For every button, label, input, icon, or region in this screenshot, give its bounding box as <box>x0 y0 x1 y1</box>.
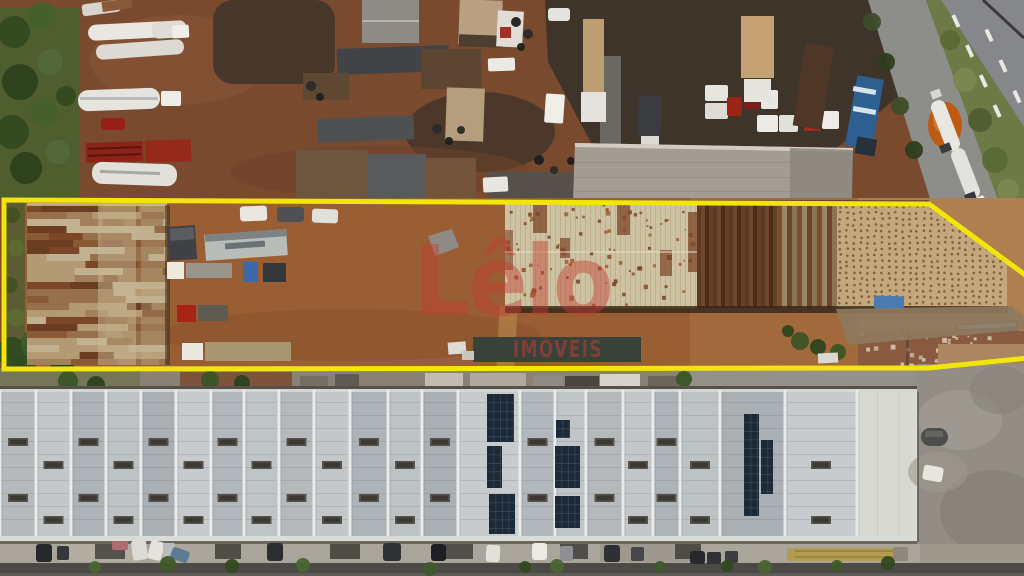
white-roof-section <box>634 213 637 216</box>
rust-dot <box>866 242 869 245</box>
white-roof-section <box>650 203 651 308</box>
rust-dot <box>986 272 989 275</box>
roof-vent <box>81 440 97 445</box>
solar-grid <box>500 394 501 442</box>
roof-purlin <box>521 519 554 520</box>
roof-seam <box>898 392 899 538</box>
rust-dot <box>845 265 848 268</box>
rust-dot <box>880 212 883 215</box>
rust-dot <box>922 260 925 263</box>
rust-dot <box>958 247 961 250</box>
roof-purlin <box>280 402 313 403</box>
rust-dot <box>908 235 911 238</box>
lane-patch <box>920 544 1024 564</box>
rusty-warehouse-roof <box>46 254 90 262</box>
solar-grid <box>507 394 508 442</box>
rusty-warehouse-roof <box>27 247 50 255</box>
roof-purlin <box>423 506 457 507</box>
roof-purlin <box>107 428 140 429</box>
rust-dot <box>965 241 968 244</box>
rust-dot <box>860 241 863 244</box>
cattle-trailer <box>86 141 144 163</box>
white-roof-section <box>530 220 532 222</box>
white-roof-section <box>649 226 652 229</box>
brick-texture <box>901 362 904 365</box>
roof-purlin <box>280 519 313 520</box>
trees-property-right <box>791 332 809 350</box>
solar-grid <box>555 522 580 523</box>
rust-dot <box>909 241 912 244</box>
roof-purlin <box>72 402 105 403</box>
roof-purlin <box>351 519 387 520</box>
roof-purlin <box>142 415 175 416</box>
rust-dot <box>958 242 961 245</box>
rust-dot <box>909 272 912 275</box>
roof-purlin <box>107 493 140 494</box>
solar-grid <box>489 503 515 504</box>
roof-purlin <box>786 402 856 403</box>
roof-vent <box>254 463 270 468</box>
roof-ridge <box>313 390 316 540</box>
rust-dot <box>930 224 933 227</box>
rusty-warehouse-roof <box>27 359 71 365</box>
white-van <box>483 176 509 192</box>
roof-purlin <box>423 480 457 481</box>
solar-grid <box>489 511 515 512</box>
solar-grid <box>489 528 515 529</box>
container-truck <box>583 19 604 93</box>
rust-dot <box>943 290 946 293</box>
roof-purlin <box>37 454 70 455</box>
rust-dot <box>859 283 862 286</box>
rust-dot <box>838 279 841 282</box>
solar-panels <box>555 446 580 488</box>
rust-dot <box>887 212 890 215</box>
roof-purlin <box>315 441 349 442</box>
rust-dot <box>943 284 946 287</box>
roof-purlin <box>786 506 856 507</box>
rust-dot <box>986 278 989 281</box>
solar-grid <box>494 446 495 488</box>
rust-dot <box>852 297 855 300</box>
roof-ridge <box>140 390 143 540</box>
rust-dot <box>957 253 960 256</box>
roof-purlin <box>351 480 387 481</box>
rust-dot <box>979 255 982 258</box>
red-truck-cab <box>177 305 196 322</box>
solar-grid <box>744 499 759 500</box>
mixed-roof-section <box>782 204 787 308</box>
rust-dot <box>944 296 947 299</box>
rust-dot <box>931 265 934 268</box>
rust-dot <box>915 289 918 292</box>
roof-purlin <box>280 493 313 494</box>
rusty-warehouse-roof <box>27 226 66 234</box>
rust-dot <box>965 260 968 263</box>
yard-car <box>240 206 268 222</box>
roof-bay <box>0 392 36 538</box>
roof-purlin <box>177 415 210 416</box>
rust-dot <box>874 260 877 263</box>
rust-dot <box>930 285 933 288</box>
doorway-shadow <box>445 544 473 559</box>
rust-dot <box>938 230 941 233</box>
rust-shed <box>421 49 481 89</box>
rust-dot <box>902 242 905 245</box>
rust-dot <box>888 266 891 269</box>
roof-purlin <box>37 506 70 507</box>
mixed-roof-section <box>802 204 807 308</box>
roof-purlin <box>72 467 105 468</box>
rusty-shed-row <box>296 150 368 200</box>
rust-dot <box>971 242 974 245</box>
brick-texture <box>874 346 878 350</box>
rust-dot <box>908 223 911 226</box>
brown-roof-section <box>737 204 741 308</box>
rust-dot <box>923 248 926 251</box>
rust-dot <box>958 266 961 269</box>
rust-dot <box>965 290 968 293</box>
solar-grid <box>744 491 759 492</box>
roof-ridge-line <box>575 162 851 163</box>
rust-dot <box>859 259 862 262</box>
rust-dot <box>853 236 856 239</box>
white-roof-section <box>572 208 575 211</box>
roof-purlin <box>177 493 210 494</box>
rust-dot <box>999 291 1002 294</box>
rust-dot <box>992 260 995 263</box>
roof-purlin <box>681 441 719 442</box>
rust-dot <box>908 218 911 221</box>
roof-purlin <box>556 415 585 416</box>
rusty-warehouse-roof <box>27 345 60 353</box>
rust-dot <box>860 229 863 232</box>
rust-dot <box>902 272 905 275</box>
roof-purlin <box>654 402 679 403</box>
rust-dot <box>874 266 877 269</box>
white-roof-section <box>680 203 681 308</box>
rust-dot <box>839 248 842 251</box>
roof-purlin <box>245 493 278 494</box>
roof-purlin <box>142 428 175 429</box>
rust-dot <box>999 284 1002 287</box>
trees-left <box>46 140 70 164</box>
roof-purlin <box>654 519 679 520</box>
roof-vent <box>630 463 646 468</box>
rust-dot <box>923 295 926 298</box>
rust-dot <box>993 265 996 268</box>
rust-dot <box>880 224 883 227</box>
rust-dot <box>888 236 891 239</box>
rust-dot <box>915 283 918 286</box>
roof-purlin <box>177 428 210 429</box>
solar-grid <box>487 403 514 404</box>
street-car <box>431 544 446 561</box>
roof-purlin <box>142 519 175 520</box>
rust-dot <box>979 248 982 251</box>
brown-roof-section <box>733 204 737 308</box>
rust-dot <box>929 296 932 299</box>
rust-dot <box>936 296 939 299</box>
rust-dot <box>986 290 989 293</box>
rust-dot <box>866 278 869 281</box>
roof-purlin <box>177 441 210 442</box>
rust-dot <box>951 296 954 299</box>
brick-texture <box>934 360 936 362</box>
rust-dot <box>957 278 960 281</box>
flatbed-rib <box>795 556 895 558</box>
alley-trees <box>676 371 692 387</box>
pavement-divider <box>917 392 919 542</box>
roof-ridge <box>70 390 73 540</box>
white-roof-section <box>638 266 642 270</box>
rust-dot <box>853 271 856 274</box>
rust-dot <box>867 224 870 227</box>
rusty-warehouse-roof <box>48 296 72 304</box>
brown-roof-section <box>701 204 705 308</box>
roof-vent <box>361 440 377 445</box>
roof-ridge <box>105 390 108 540</box>
brick-texture <box>910 353 914 357</box>
roof-purlin <box>72 454 105 455</box>
rust-dot <box>859 302 862 305</box>
solar-grid <box>487 472 502 473</box>
trees-property-right <box>782 325 794 337</box>
mixed-roof-section <box>822 204 827 308</box>
rust-dot <box>839 272 842 275</box>
rust-dot <box>937 271 940 274</box>
rust-dot <box>888 272 891 275</box>
roof-ridge-line <box>575 191 851 192</box>
brown-roof-section <box>773 204 777 308</box>
rust-dot <box>993 283 996 286</box>
tires-scattered <box>534 155 544 165</box>
solar-grid <box>744 508 759 509</box>
rust-dot <box>936 277 939 280</box>
rust-dot <box>859 211 862 214</box>
trees-left <box>30 98 58 126</box>
rust-dot <box>845 229 848 232</box>
roof-purlin <box>1 519 35 520</box>
roof-vent <box>692 463 708 468</box>
rust-dot <box>930 212 933 215</box>
roof-purlin <box>587 493 622 494</box>
solar-grid <box>487 480 502 481</box>
roof-purlin <box>389 506 421 507</box>
white-roof-section <box>649 234 652 237</box>
rust-dot <box>888 260 891 263</box>
roof-purlin <box>681 506 719 507</box>
brick-texture <box>891 345 896 350</box>
rust-dot <box>944 236 947 239</box>
rust-dot <box>910 230 913 233</box>
roof-purlin <box>142 467 175 468</box>
rust-dot <box>838 223 841 226</box>
rust-shed-roof <box>445 87 485 141</box>
rust-dot <box>951 253 954 256</box>
roof-purlin <box>351 402 387 403</box>
watermark-brand: Lêlo <box>414 225 611 338</box>
rust-dot <box>910 267 913 270</box>
parked-car <box>757 115 778 132</box>
roof-ridge <box>784 390 787 540</box>
rusty-shed-row <box>368 154 426 200</box>
rust-dot <box>895 289 898 292</box>
roof-purlin <box>72 480 105 481</box>
roof-purlin <box>177 506 210 507</box>
rust-dot <box>860 223 863 226</box>
rust-dot <box>971 290 974 293</box>
roof-purlin <box>654 467 679 468</box>
rust-dot <box>839 206 842 209</box>
white-roof-section <box>682 290 685 293</box>
roof-purlin <box>587 467 622 468</box>
roof-ridge <box>278 390 281 540</box>
street-trees <box>550 559 564 573</box>
roof-purlin <box>721 519 784 520</box>
rust-dot <box>951 302 954 305</box>
white-roof-section <box>635 203 636 308</box>
roof-purlin <box>351 467 387 468</box>
roof-purlin <box>624 415 652 416</box>
white-roof-section <box>640 212 643 215</box>
roof-bay <box>586 392 623 538</box>
roof-purlin <box>142 493 175 494</box>
roof-purlin <box>624 493 652 494</box>
roof-purlin <box>245 454 278 455</box>
roof-purlin <box>37 415 70 416</box>
roof-purlin <box>107 415 140 416</box>
rust-dot <box>889 289 892 292</box>
rust-dot <box>845 277 848 280</box>
rust-dot <box>866 290 869 293</box>
rust-dot <box>902 206 905 209</box>
white-roof-section <box>666 219 668 221</box>
small-truck <box>818 352 838 363</box>
rust-dot <box>903 284 906 287</box>
rust-dot <box>895 266 898 269</box>
white-roof-section <box>640 203 641 308</box>
roof-purlin <box>624 506 652 507</box>
hedge-right <box>905 141 923 159</box>
tanker-cab <box>161 91 181 106</box>
rust-dot <box>930 248 933 251</box>
rust-dot <box>909 260 912 263</box>
rust-dot <box>929 289 932 292</box>
roof-purlin <box>107 454 140 455</box>
rust-dot <box>957 260 960 263</box>
rust-dot <box>979 279 982 282</box>
brick-texture <box>866 348 870 352</box>
rust-dot <box>923 255 926 258</box>
mixed-roof-section <box>817 204 822 308</box>
roof-ridge <box>175 390 178 540</box>
rust-dot <box>971 260 974 263</box>
rust-dot <box>903 266 906 269</box>
solar-grid <box>744 423 759 424</box>
roof-purlin <box>587 402 622 403</box>
rust-dot <box>922 301 925 304</box>
trees-left <box>56 86 76 106</box>
solar-grid <box>761 466 773 467</box>
street-car <box>486 545 501 563</box>
solar-grid <box>562 496 563 528</box>
roof-purlin <box>1 454 35 455</box>
rust-dot <box>880 284 883 287</box>
rust-dot <box>908 283 911 286</box>
semi-cab <box>182 343 203 360</box>
rust-dot <box>845 235 848 238</box>
roof-purlin <box>556 441 585 442</box>
grass-texture <box>997 179 1019 201</box>
solar-grid <box>555 505 580 506</box>
roof-vent <box>432 440 448 445</box>
rust-dot <box>902 212 905 215</box>
solar-grid <box>744 448 759 449</box>
street-car <box>112 541 128 550</box>
roof-purlin <box>556 402 585 403</box>
roof-vent <box>289 440 305 445</box>
roof-purlin <box>142 480 175 481</box>
rust-dot <box>894 271 897 274</box>
roof-purlin <box>423 428 457 429</box>
roof-purlin <box>654 415 679 416</box>
roof-purlin <box>1 480 35 481</box>
parked-car <box>705 85 728 101</box>
aerial-photo: Lêlo IMÓVEIS <box>0 0 1024 576</box>
white-roof-section <box>615 203 616 308</box>
roof-purlin <box>389 480 421 481</box>
rust-dot <box>839 253 842 256</box>
street-car <box>604 545 620 562</box>
roof-ridge <box>0 390 2 540</box>
roof-vent <box>530 496 546 501</box>
roof-ridge <box>35 390 38 540</box>
rust-dot <box>937 223 940 226</box>
rust-dot <box>915 230 918 233</box>
roof-purlin <box>587 454 622 455</box>
rust-dot <box>838 297 841 300</box>
roof-bay <box>350 392 388 538</box>
rust-dot <box>902 289 905 292</box>
roof-purlin <box>37 493 70 494</box>
roof-purlin <box>681 428 719 429</box>
rusty-warehouse-roof <box>27 212 66 220</box>
roof-purlin <box>721 402 784 403</box>
roof-vent <box>597 440 613 445</box>
rust-dot <box>952 229 955 232</box>
roof-purlin <box>786 493 856 494</box>
rust-dot <box>880 254 883 257</box>
brown-roof-section <box>717 204 721 308</box>
rust-dot <box>929 277 932 280</box>
white-roof-section <box>582 216 585 219</box>
rust-dot <box>924 236 927 239</box>
roof-purlin <box>107 402 140 403</box>
rusty-warehouse-roof <box>27 268 74 276</box>
rust-dot <box>866 266 869 269</box>
rust-dot <box>931 302 934 305</box>
solar-grid <box>575 496 576 528</box>
mixed-roof-section <box>787 204 792 308</box>
rust-dot <box>845 206 848 209</box>
mixed-roof-section <box>832 204 837 308</box>
rust-dot <box>882 217 885 220</box>
trees-left <box>28 2 56 30</box>
rust-dot <box>916 242 919 245</box>
roof-vent <box>397 518 413 523</box>
street-car <box>631 547 644 561</box>
